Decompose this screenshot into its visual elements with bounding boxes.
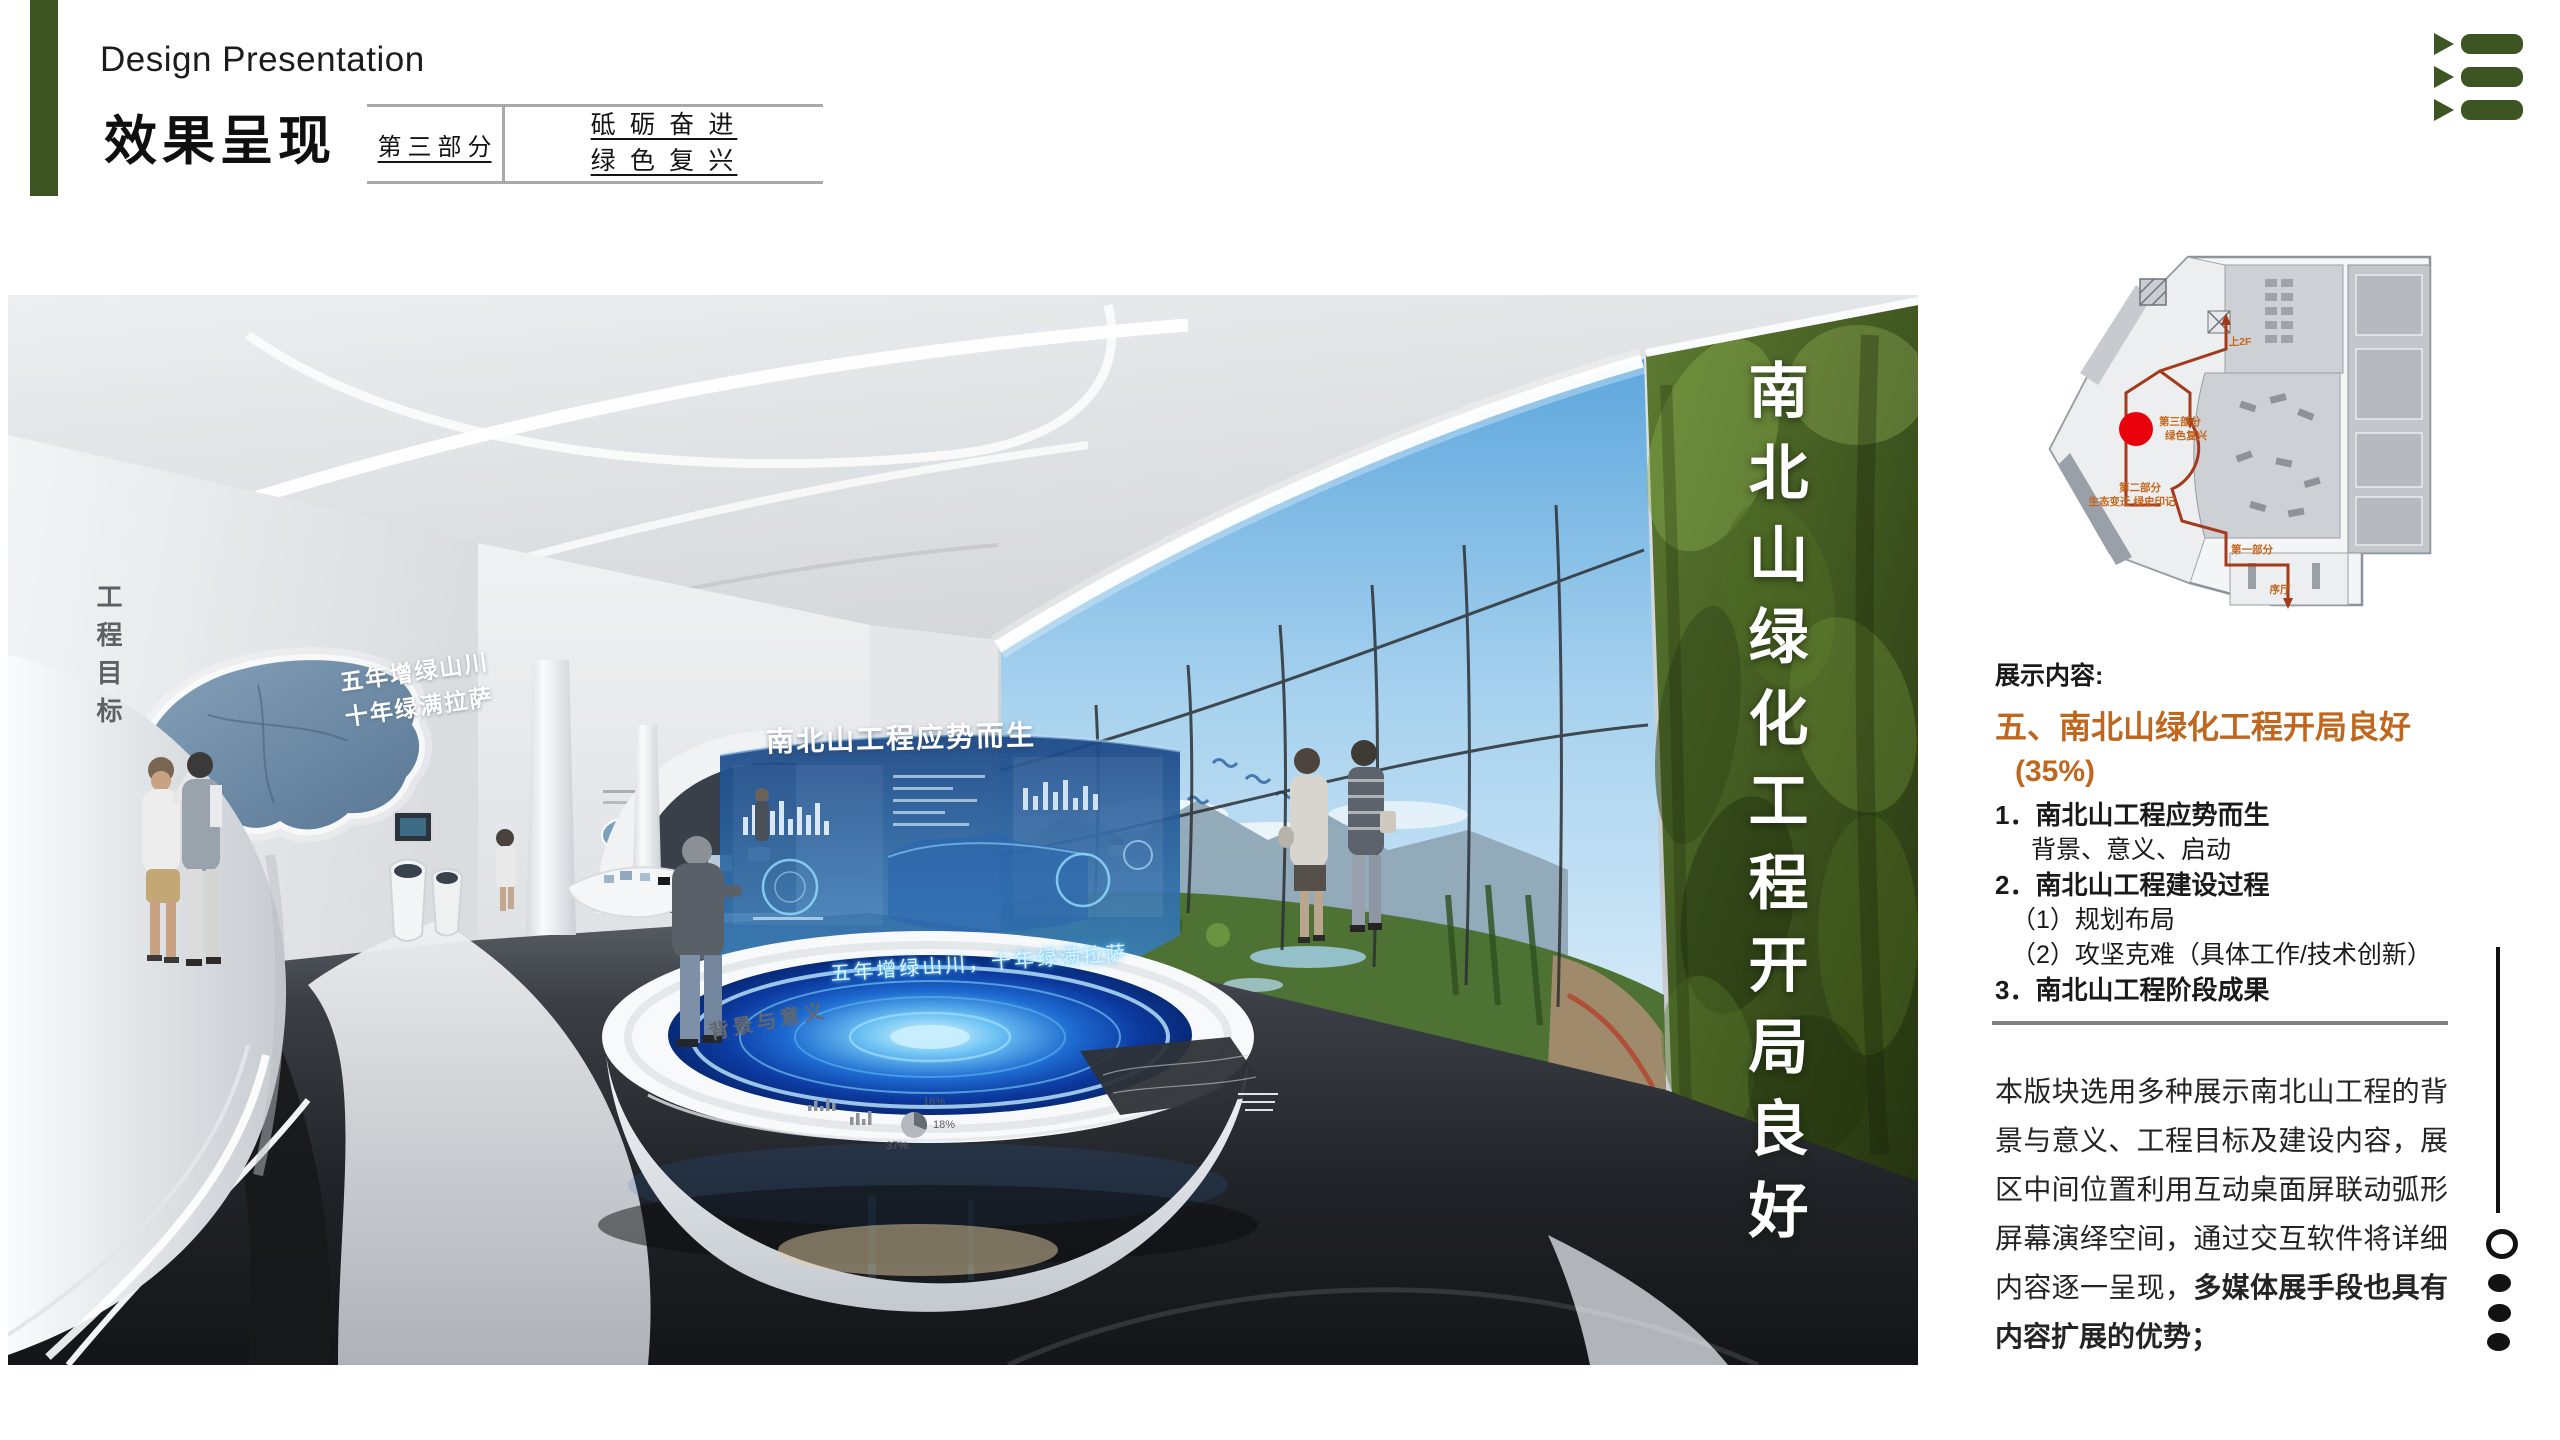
menu-bar: [2461, 67, 2523, 87]
plan-label-lobby: 序厅: [2270, 583, 2292, 596]
outline-heading: 五、南北山绿化工程开局良好: [1995, 702, 2465, 748]
outline-item-3: 3．南北山工程阶段成果: [1995, 973, 2465, 1008]
green-wall-vertical-title: 南北山绿化工程开局良好: [1730, 359, 1817, 1261]
plan-label-part1: 第一部分: [2231, 543, 2273, 556]
menu-row: [2434, 99, 2534, 121]
outline-item-2-sub2: （2）攻坚克难（具体工作/技术创新）: [1995, 938, 2465, 973]
visitor-far: [755, 788, 769, 841]
plan-label-part3: 第三部分: [2159, 415, 2201, 428]
page-title-cn: 效果呈现: [104, 99, 336, 175]
outline-item-2: 2．南北山工程建设过程: [1995, 868, 2465, 903]
triangle-bullet-icon: [2434, 66, 2454, 88]
content-divider: [1992, 1021, 2448, 1025]
outline-weight: (35%): [1995, 755, 2465, 789]
wall-caption-vertical: 工程目标: [90, 583, 127, 735]
pager-line: [2496, 947, 2500, 1213]
pager-dot[interactable]: [2488, 1274, 2511, 1292]
description-paragraph: 本版块选用多种展示南北山工程的背景与意义、工程目标及建设内容，展区中间位置利用互…: [1995, 1067, 2448, 1361]
floor-plan: 上2F 第三部分 绿色复兴 第二部分 生态变迁 绿史印记 第一部分 序厅: [2040, 253, 2436, 631]
section-label: 展示内容:: [1995, 656, 2465, 692]
menu-bar: [2461, 34, 2523, 54]
part-label: 第 三 部 分: [378, 127, 492, 162]
outline-item-1: 1．南北山工程应势而生: [1995, 798, 2465, 833]
menu-row: [2434, 66, 2534, 88]
exhibition-render-image: 16% 18% 37% 工程目标 五年增绿山川十年绿满拉萨 南北山工程应势而生: [8, 295, 1918, 1365]
render-scene: 16% 18% 37%: [8, 295, 1918, 1365]
display-content-outline: 展示内容: 五、南北山绿化工程开局良好 (35%) 1．南北山工程应势而生 背景…: [1995, 656, 2465, 1008]
menu-bar: [2461, 100, 2523, 120]
page-title-en: Design Presentation: [100, 40, 425, 80]
section-part-table: 第 三 部 分 砥 砺 奋 进 绿 色 复 兴: [367, 104, 823, 184]
part-slogan-line2: 绿 色 复 兴: [591, 144, 738, 180]
plan-label-part2-sub: 生态变迁 绿史印记: [2089, 495, 2176, 508]
pie-label-16: 16%: [923, 1096, 945, 1108]
pager-dot[interactable]: [2487, 1333, 2510, 1351]
paragraph-normal: 本版块选用多种展示南北山工程的背景与意义、工程目标及建设内容，展区中间位置利用互…: [1995, 1076, 2448, 1303]
screen-title-3d-text: 南北山工程应势而生: [766, 713, 1037, 760]
accent-bar: [30, 0, 58, 196]
plan-label-part2: 第二部分: [2119, 481, 2161, 494]
part-slogan-cell: 砥 砺 奋 进 绿 色 复 兴: [505, 107, 823, 181]
pager-dot[interactable]: [2488, 1304, 2511, 1322]
list-menu-icon[interactable]: [2434, 33, 2534, 121]
plan-label-part3-sub: 绿色复兴: [2165, 429, 2207, 442]
triangle-bullet-icon: [2434, 99, 2454, 121]
part-label-cell: 第 三 部 分: [367, 107, 505, 181]
triangle-bullet-icon: [2434, 33, 2454, 55]
menu-row: [2434, 33, 2534, 55]
pie-label-37: 37%: [886, 1140, 908, 1152]
outline-item-1-sub: 背景、意义、启动: [1995, 833, 2465, 868]
plan-label-up2f: 上2F: [2229, 335, 2252, 348]
pager-current-page-indicator[interactable]: [2486, 1229, 2518, 1259]
current-location-marker: [2119, 412, 2153, 446]
part-slogan-line1: 砥 砺 奋 进: [591, 108, 738, 144]
outline-item-2-sub1: （1）规划布局: [1995, 903, 2465, 938]
pie-label-18: 18%: [933, 1119, 955, 1131]
